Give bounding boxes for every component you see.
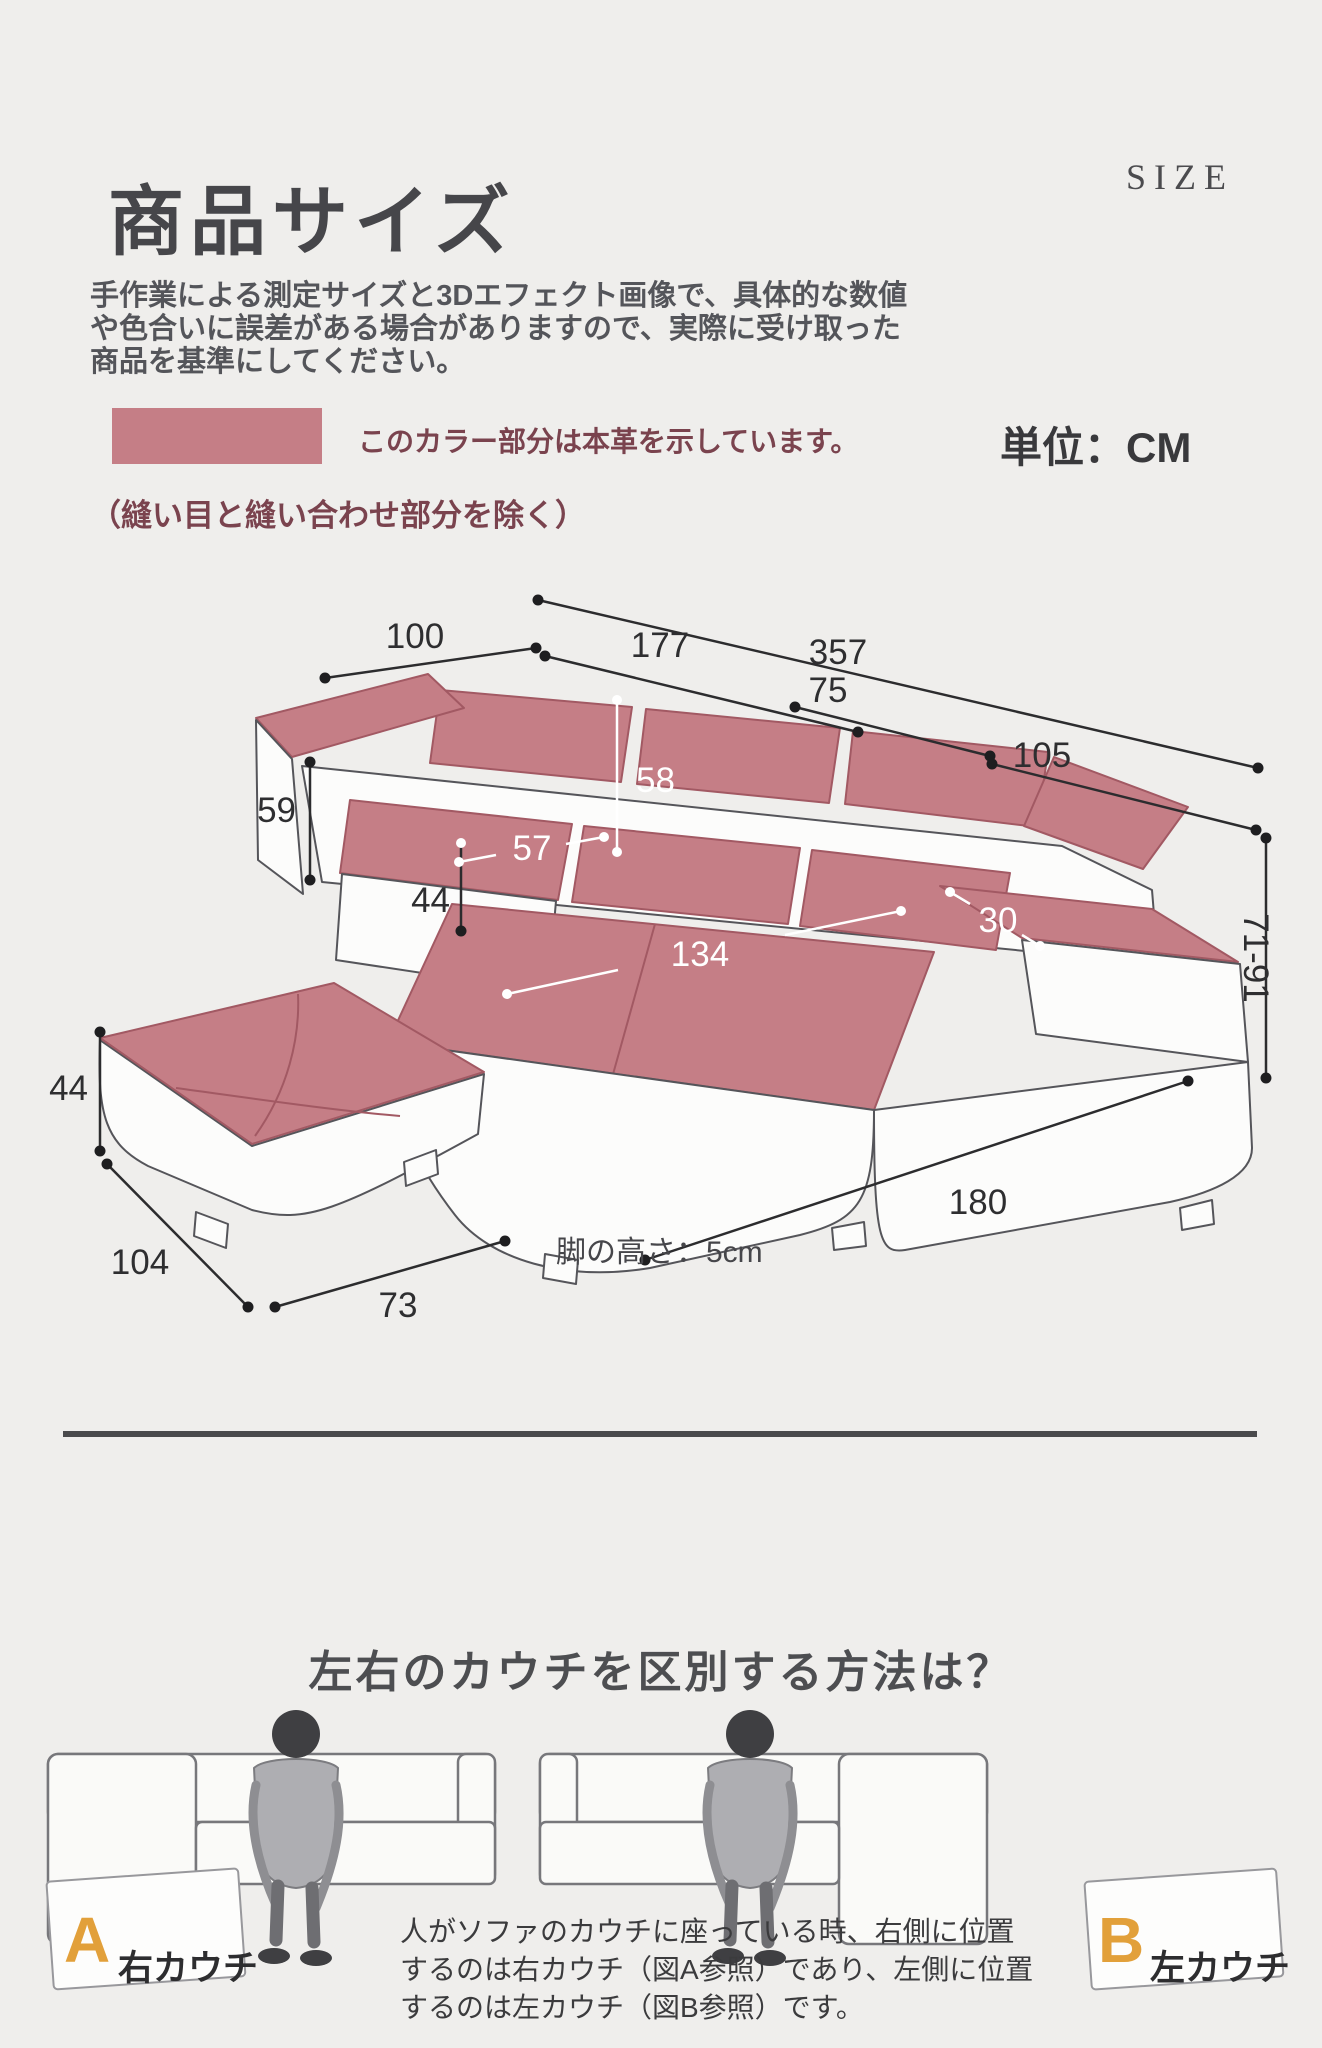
unit-label: 単位：CM — [1000, 414, 1191, 475]
dim-73-label: 73 — [379, 1286, 418, 1325]
dim-357-label: 357 — [809, 633, 867, 672]
dim-104-label: 104 — [111, 1243, 169, 1282]
size-watermark: SIZE — [1126, 156, 1234, 198]
ottoman-leg — [194, 1212, 228, 1248]
dim-57-label: 57 — [513, 829, 552, 868]
guide-description-line-3: するのは左カウチ（図B参照）です。 — [400, 1989, 980, 2027]
divider-line — [63, 1431, 1257, 1437]
dim-134-label: 134 — [671, 935, 729, 974]
dim-177-label: 177 — [631, 626, 689, 665]
sofa-leg — [1180, 1200, 1214, 1230]
figure-b-label: 左カウチ — [1150, 1949, 1290, 1988]
figure-a-letter: A — [64, 1904, 110, 1976]
figure-b-letter: B — [1098, 1904, 1144, 1976]
dim-100: 100 — [320, 617, 542, 684]
figure-a-seat — [196, 1822, 495, 1884]
dim-30-label: 30 — [979, 901, 1018, 940]
dim-44-ottoman: 44 — [49, 1027, 105, 1157]
dim-100-label: 100 — [386, 617, 444, 656]
seam-note: （縫い目と縫い合わせ部分を除く） — [90, 490, 586, 535]
dim-180-label: 180 — [949, 1183, 1007, 1222]
guide-description-line-2: するのは右カウチ（図A参照）であり、左側に位置 — [400, 1951, 980, 1989]
dim-75-label: 75 — [809, 671, 848, 710]
leg-height-note: 脚の高さ：5cm — [556, 1236, 763, 1269]
dim-73: 73 — [270, 1236, 511, 1326]
guide-description-line-1: 人がソファのカウチに座っている時、右側に位置 — [400, 1913, 980, 1951]
dim-105-label: 105 — [1013, 736, 1071, 775]
dim-71-91-label: 71-91 — [1236, 913, 1275, 1003]
dim-58-label: 58 — [636, 761, 675, 800]
page-title: 商品サイズ — [108, 160, 516, 270]
sofa-illustration — [99, 674, 1252, 1284]
product-size-page: 商品サイズ SIZE 手作業による測定サイズと3Dエフェクト画像で、具体的な数値… — [0, 0, 1322, 2048]
sofa-leg — [832, 1222, 866, 1250]
dim-59-label: 59 — [257, 791, 296, 830]
dim-44-seat-label: 44 — [411, 881, 450, 920]
figure-a-person — [253, 1710, 339, 1966]
figure-a-label: 右カウチ — [118, 1949, 258, 1988]
sofa-dimension-diagram: 357 100 177 75 105 71-91 — [0, 560, 1322, 1410]
dim-44-ottoman-label: 44 — [49, 1069, 88, 1108]
leather-legend-label: このカラー部分は本革を示しています。 — [358, 420, 858, 460]
description-line-2: や色合いに誤差がある場合がありますので、実際に受け取った — [90, 313, 907, 346]
guide-description: 人がソファのカウチに座っている時、右側に位置 するのは右カウチ（図A参照）であり… — [400, 1913, 980, 2027]
description-line-1: 手作業による測定サイズと3Dエフェクト画像で、具体的な数値 — [90, 280, 907, 313]
product-description: 手作業による測定サイズと3Dエフェクト画像で、具体的な数値 や色合いに誤差がある… — [90, 280, 907, 379]
leather-color-swatch — [112, 408, 322, 464]
description-line-3: 商品を基準にしてください。 — [90, 346, 907, 379]
